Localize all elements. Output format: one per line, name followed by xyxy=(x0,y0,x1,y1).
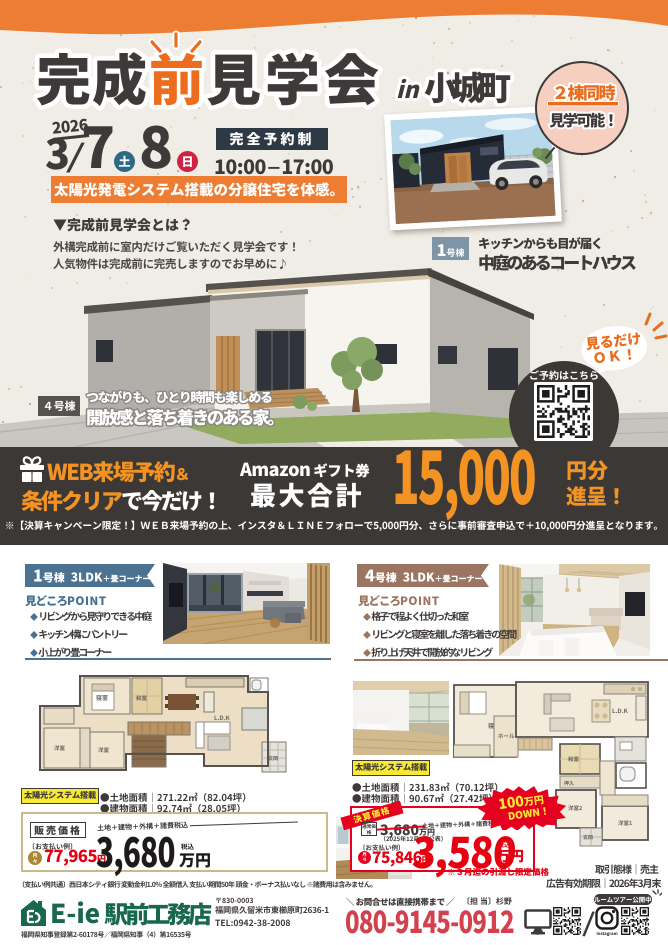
svg-text:小城町: 小城町 xyxy=(424,62,511,110)
svg-text:玄関: 玄関 xyxy=(583,834,593,841)
svg-text:ホール: ホール xyxy=(498,732,515,740)
svg-text:開放感と落ち着きのある家。: 開放感と落ち着きのある家。 xyxy=(86,405,282,430)
svg-text:L.D.K: L.D.K xyxy=(612,706,629,715)
svg-text:寝室: 寝室 xyxy=(96,693,108,702)
svg-text:つながりも、ひとり時間も楽しめる: つながりも、ひとり時間も楽しめる xyxy=(86,387,272,406)
svg-text:洋室: 洋室 xyxy=(98,746,110,754)
svg-text:L.D.K: L.D.K xyxy=(214,713,231,722)
svg-text:洋室: 洋室 xyxy=(54,744,66,752)
svg-text:Instagram: Instagram xyxy=(596,931,617,936)
svg-text:和室: 和室 xyxy=(568,755,580,763)
svg-text:見学可能！: 見学可能！ xyxy=(549,109,617,131)
svg-text:玄関: 玄関 xyxy=(268,755,278,762)
svg-text:洋室2: 洋室2 xyxy=(568,804,582,812)
svg-text:in: in xyxy=(396,71,420,105)
svg-text:HP: HP xyxy=(536,931,542,935)
svg-text:２棟同時: ２棟同時 xyxy=(552,79,615,104)
svg-text:和室: 和室 xyxy=(136,694,148,702)
svg-text:洋室1: 洋室1 xyxy=(618,819,632,827)
svg-text:見学会: 見学会 xyxy=(206,36,383,116)
svg-text:ご予約はこちら: ご予約はこちら xyxy=(529,367,599,382)
